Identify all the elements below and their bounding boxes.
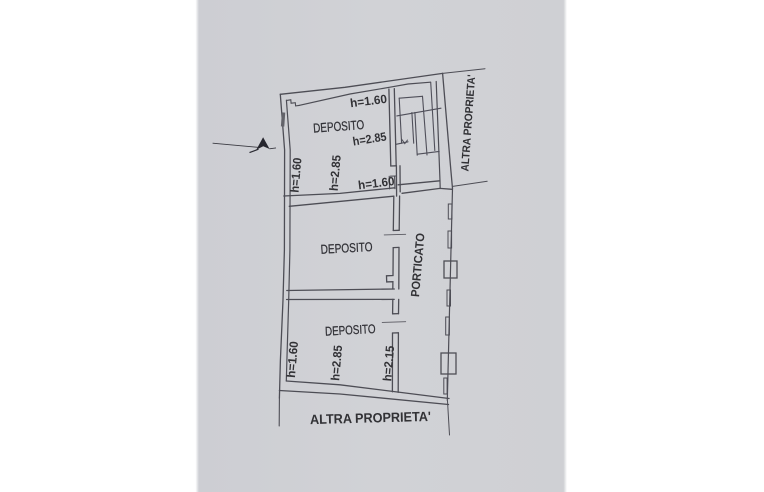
svg-text:ALTRA PROPRIETA': ALTRA PROPRIETA' xyxy=(310,409,431,427)
svg-text:DEPOSITO: DEPOSITO xyxy=(325,322,376,339)
svg-text:DEPOSITO: DEPOSITO xyxy=(320,239,373,257)
